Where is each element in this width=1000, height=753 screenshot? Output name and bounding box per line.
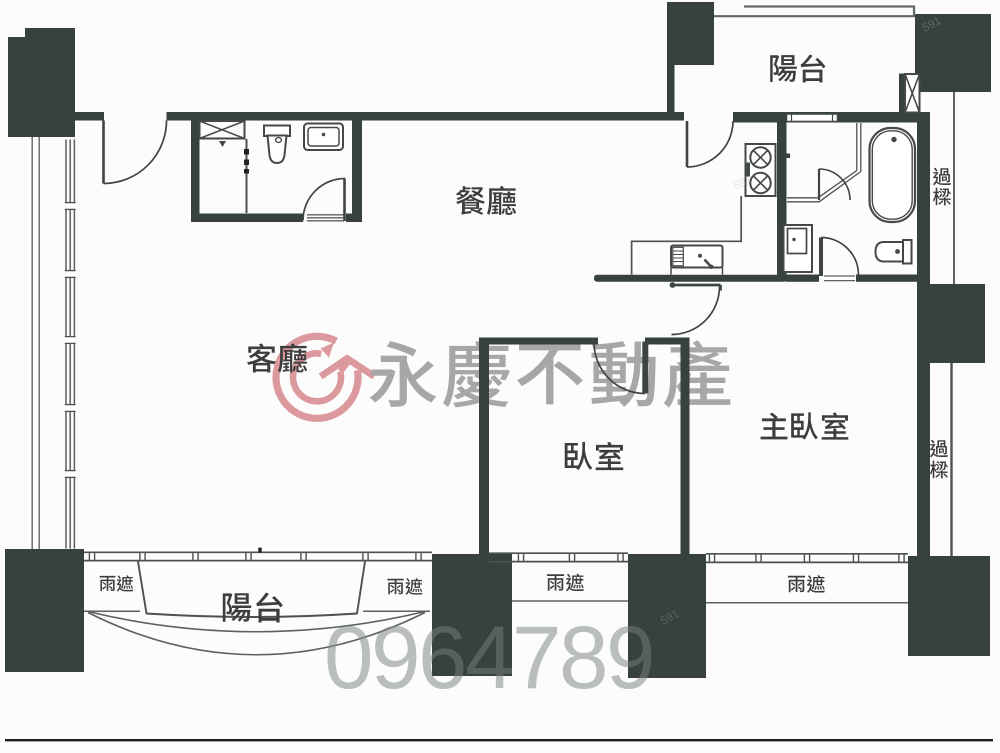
svg-text:0964789: 0964789 [324, 607, 653, 707]
